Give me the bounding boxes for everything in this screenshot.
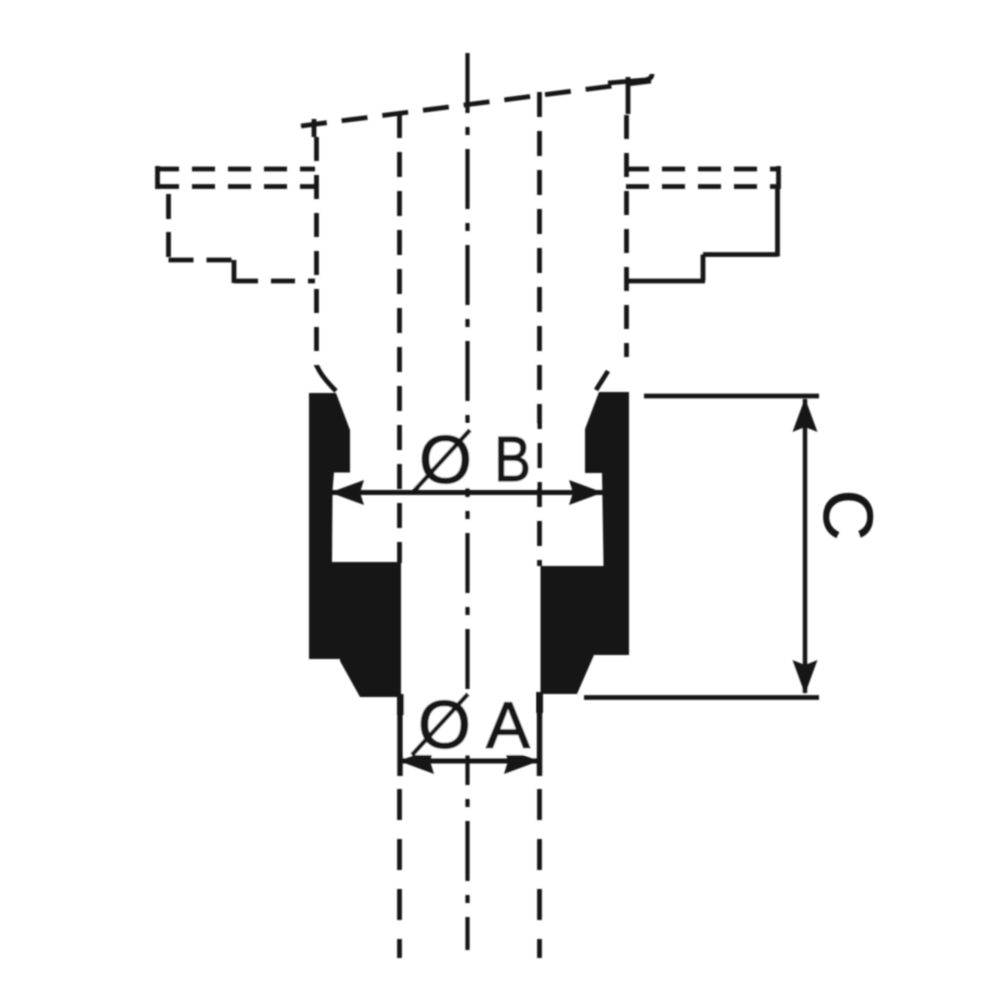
- svg-text:A: A: [486, 688, 530, 762]
- svg-text:C: C: [809, 490, 887, 541]
- svg-text:B: B: [494, 423, 531, 495]
